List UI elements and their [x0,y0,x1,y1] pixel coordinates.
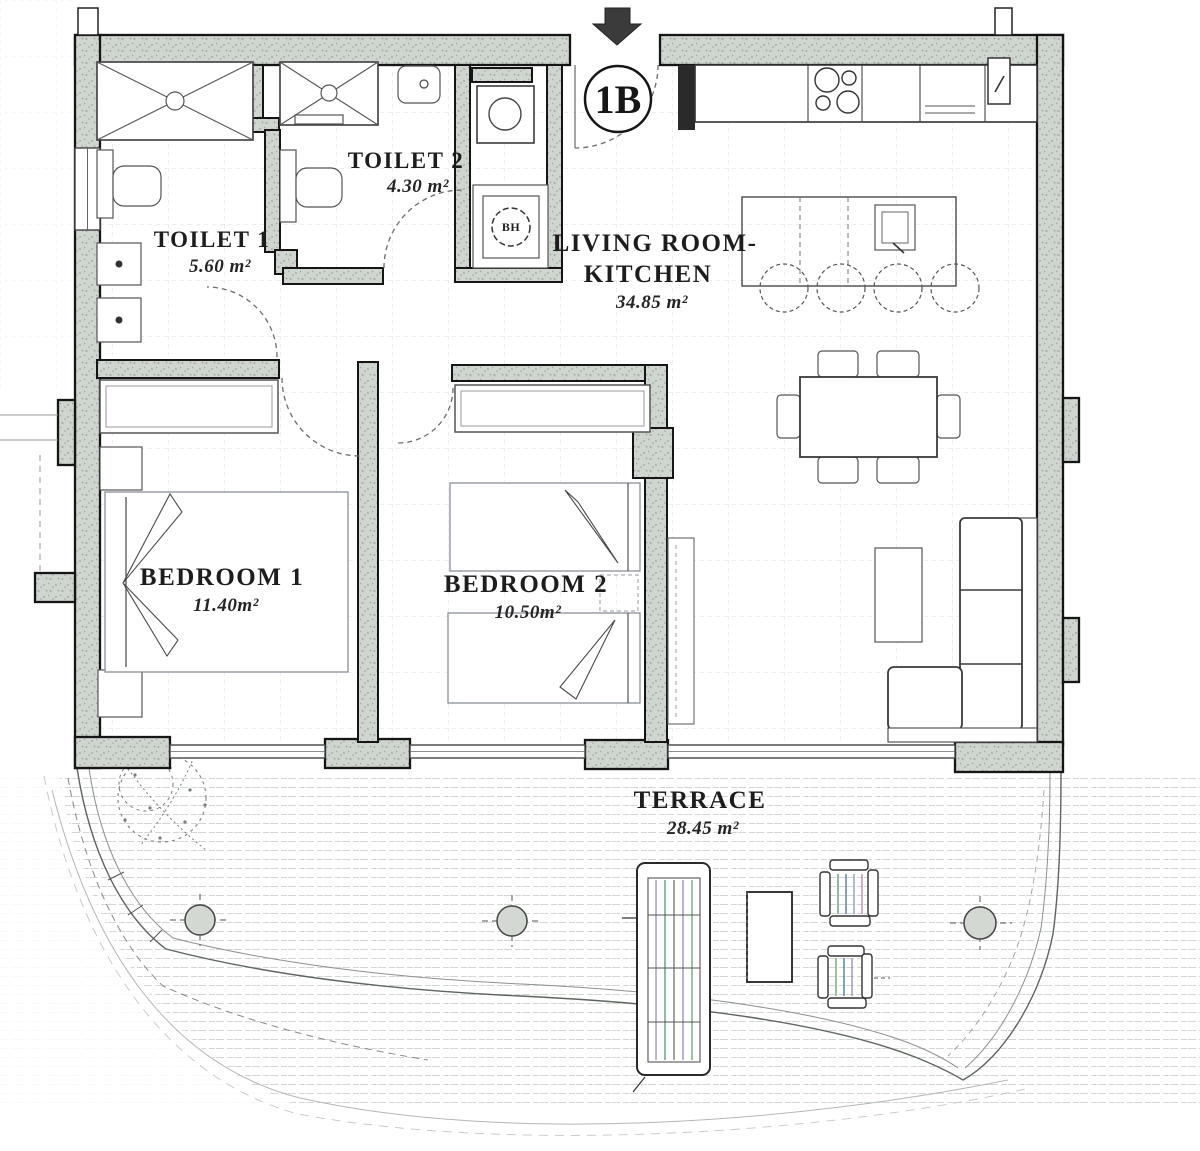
room-label-terrace: TERRACE [634,787,767,814]
dining-chair-icon [818,351,858,377]
room-area-terrace: 28.45 m² [666,818,740,839]
single-bed-icon [448,613,640,703]
terrace-table-icon [747,892,792,982]
room-area-toilet1: 5.60 m² [189,256,252,277]
dining-table-icon [800,377,937,457]
coffee-table-icon [875,548,922,642]
room-area-bedroom2: 10.50m² [495,602,563,623]
kitchen-wall-stub [678,65,695,130]
water-heater-icon: BH [473,185,548,268]
washbasin-icon [398,66,440,103]
shower-icon [97,62,253,140]
dining-chair-icon [818,457,858,483]
dining-chair-icon [937,395,960,438]
sofa-icon [960,518,1022,730]
room-area-toilet2: 4.30 m² [386,176,450,197]
room-area-living: 34.85 m² [615,292,689,313]
sofa-corner-seat [888,667,962,730]
dining-chair-icon [877,457,919,483]
sink-icon [97,243,141,285]
kitchen-counter [695,65,1037,122]
shower-icon [280,62,378,125]
room-label-living-line2: KITCHEN [584,261,713,288]
tall-cabinet-icon [988,58,1010,104]
floor-plan-canvas: BH [0,0,1200,1151]
tv-unit-icon [668,538,694,724]
wall-stub [78,8,98,35]
dining-chair-icon [877,351,919,377]
room-label-toilet1: TOILET 1 [154,227,271,252]
room-label-living-line1: LIVING ROOM- [553,230,758,257]
bedroom2-furniture [448,385,650,703]
wardrobe-icon [100,380,278,433]
nightstand-icon [100,447,142,490]
room-label-bedroom2: BEDROOM 2 [444,571,608,598]
room-label-bedroom1: BEDROOM 1 [140,564,304,591]
sofa-armrest [888,728,1037,742]
unit-badge: 1B [585,66,651,132]
shaft [633,428,673,478]
single-bed-icon [450,483,640,571]
room-area-bedroom1: 11.40m² [193,595,259,616]
neighbor-floor-tiles [0,0,75,390]
nightstand-icon [98,670,142,717]
washing-machine-icon [477,86,534,143]
water-heater-label: BH [502,220,521,234]
shelf [472,68,532,82]
island-sink-icon [875,205,915,253]
wall-stub [995,8,1012,35]
unit-label: 1B [595,77,642,122]
dining-chair-icon [777,395,800,438]
bidet-icon [97,298,141,342]
floor-plan-page: BH [0,0,1200,1151]
room-label-toilet2: TOILET 2 [348,148,465,173]
wardrobe-icon [455,385,650,432]
terrace-area [0,752,1200,1151]
